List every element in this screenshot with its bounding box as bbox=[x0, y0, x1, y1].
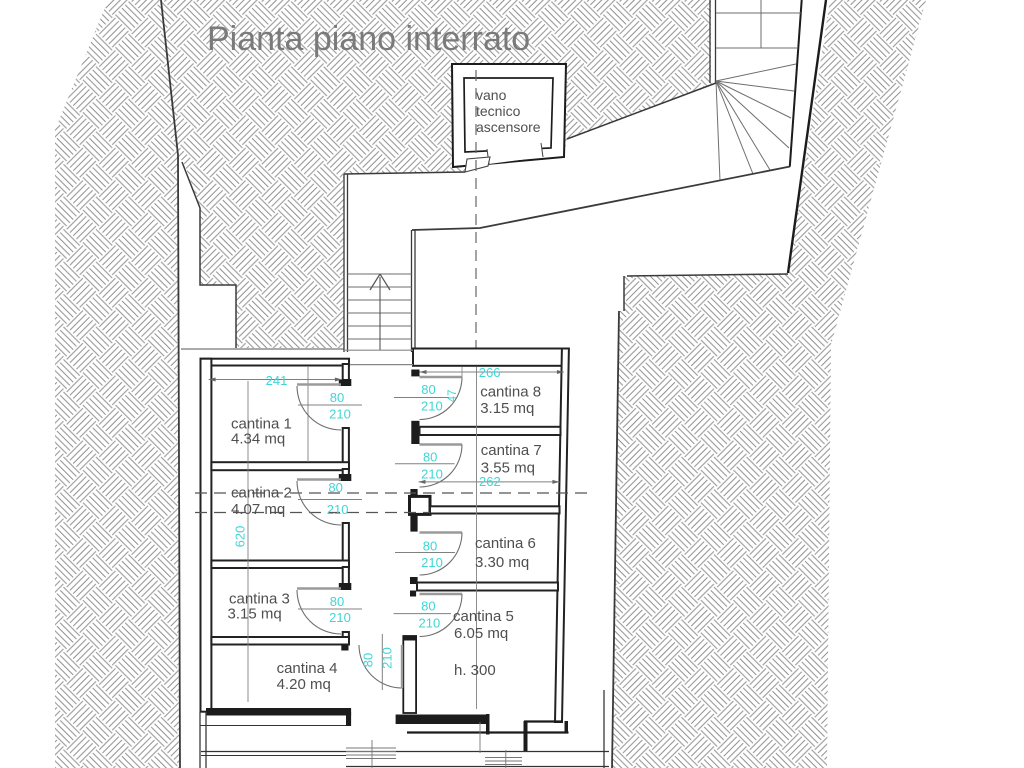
svg-text:80: 80 bbox=[330, 390, 344, 405]
svg-text:cantina 6: cantina 6 bbox=[475, 535, 536, 552]
svg-text:620: 620 bbox=[233, 526, 248, 548]
svg-text:210: 210 bbox=[327, 502, 349, 517]
svg-text:210: 210 bbox=[329, 610, 351, 625]
svg-text:210: 210 bbox=[329, 407, 351, 422]
svg-text:ascensore: ascensore bbox=[476, 119, 541, 135]
svg-text:3.15 mq: 3.15 mq bbox=[228, 606, 282, 623]
svg-text:80: 80 bbox=[421, 599, 435, 614]
svg-text:4.20 mq: 4.20 mq bbox=[277, 676, 331, 693]
svg-text:80: 80 bbox=[423, 539, 437, 554]
svg-text:3.15 mq: 3.15 mq bbox=[480, 400, 534, 417]
svg-text:6.05 mq: 6.05 mq bbox=[454, 625, 508, 642]
svg-text:80: 80 bbox=[328, 480, 342, 495]
svg-text:cantina 7: cantina 7 bbox=[481, 442, 542, 459]
svg-text:210: 210 bbox=[419, 616, 441, 631]
svg-text:3.55 mq: 3.55 mq bbox=[481, 460, 535, 477]
svg-text:3.30 mq: 3.30 mq bbox=[475, 554, 529, 571]
svg-text:vano: vano bbox=[476, 87, 507, 103]
svg-text:tecnico: tecnico bbox=[476, 103, 521, 119]
svg-text:47: 47 bbox=[447, 390, 459, 403]
svg-text:210: 210 bbox=[380, 647, 395, 669]
svg-text:210: 210 bbox=[421, 555, 443, 570]
svg-text:80: 80 bbox=[421, 382, 435, 397]
svg-text:80: 80 bbox=[330, 594, 344, 609]
svg-text:cantina 2: cantina 2 bbox=[231, 485, 292, 502]
svg-text:4.07 mq: 4.07 mq bbox=[231, 501, 285, 518]
svg-text:cantina 5: cantina 5 bbox=[453, 608, 514, 625]
svg-text:cantina 8: cantina 8 bbox=[480, 384, 541, 401]
svg-text:80: 80 bbox=[423, 450, 437, 465]
svg-text:210: 210 bbox=[421, 399, 443, 414]
svg-text:Pianta piano interrato: Pianta piano interrato bbox=[207, 20, 530, 58]
svg-text:cantina 4: cantina 4 bbox=[277, 660, 338, 677]
svg-text:80: 80 bbox=[361, 653, 376, 667]
svg-text:266: 266 bbox=[479, 365, 501, 380]
svg-text:210: 210 bbox=[421, 467, 443, 482]
svg-text:h. 300: h. 300 bbox=[454, 662, 496, 679]
svg-text:241: 241 bbox=[266, 373, 288, 388]
svg-text:4.34 mq: 4.34 mq bbox=[231, 431, 285, 448]
